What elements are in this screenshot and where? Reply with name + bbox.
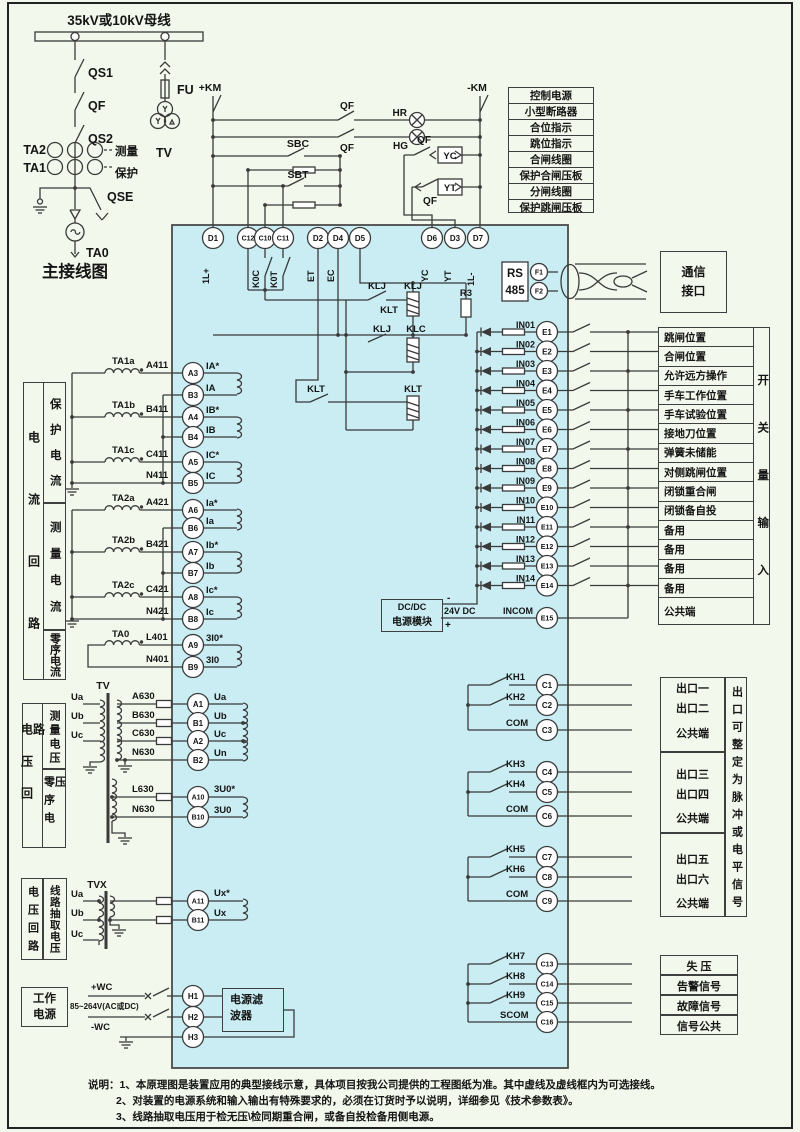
svg-text:A8: A8 [188,593,199,602]
terminal-F1: F1 [531,264,548,281]
note-line-3: 3、线路抽取电压用于检无压\检同期重合闸，或备自投检备用侧电源。 [116,1109,440,1124]
terminal-E10: E10 [537,497,558,518]
wire-label: N421 [146,606,169,617]
svg-text:F1: F1 [535,270,543,277]
wire-label: L401 [146,632,168,643]
current-loop-sidebar: 电流回路 [23,382,44,680]
terminal-A5: A5 [183,452,204,473]
legend-row: 合位指示 [509,120,593,136]
do-label: 公共端 [661,895,724,911]
wire-tag-YT: YT [443,270,453,282]
svg-text:E15: E15 [541,616,554,623]
terminal-H3: H3 [183,1027,204,1048]
signal-label-text: 信号公共 [661,1018,737,1034]
working-power-line1: 工作 [33,991,56,1007]
svg-text:C7: C7 [542,853,553,862]
svg-text:A9: A9 [188,641,199,650]
terminal-A9: A9 [183,635,204,656]
signal-box-1: 失 压 [660,955,738,975]
com-label: COM [506,718,528,729]
di-table-row: 备用 [659,579,753,598]
wire-tag-ET: ET [306,270,316,282]
kh-contact-label: KH9 [506,990,525,1001]
signal-box-2: 告警信号 [660,975,738,995]
measure-voltage-label: 测量电压 [48,710,59,766]
terminal-A2: A2 [188,731,209,752]
do-label: 公共端 [661,810,724,826]
measure-current-sidebar: 测量电流 [43,503,66,630]
kh-contact-label: KH2 [506,692,525,703]
di-input-label: IN07 [516,437,535,447]
di-input-label: IN13 [516,554,535,564]
wire-tag-1L+: 1L+ [201,268,211,284]
svg-text:E11: E11 [541,525,553,532]
di-input-label: IN04 [516,379,535,389]
terminal-E12: E12 [537,536,558,557]
terminal-E5: E5 [537,400,558,421]
signal-label: IC* [206,450,220,461]
signal-label: IA* [206,361,220,372]
do-group3-box: 出口五 出口六 公共端 [660,833,725,917]
svg-text:B10: B10 [192,815,205,822]
com-label: COM [506,889,528,900]
yc-coil-label: YC [443,151,456,162]
signal-label: 3I0* [206,633,223,644]
k0c-contact-label: K0C [251,269,261,288]
wire-label: B421 [146,539,169,550]
svg-text:H2: H2 [188,1013,199,1022]
rs-label: RS [507,268,523,280]
terminal-B2: B2 [188,750,209,771]
di-input-label: IN14 [516,574,535,584]
line-voltage-sidebar: 线路抽取电压 [43,878,67,960]
signal-label: Ia* [206,498,218,509]
ct-label: TA2b [112,535,135,546]
do-sidebar: 出口可整定为脉冲或电平信号 [725,677,747,917]
tvx-symbol-label: TVX [87,880,107,891]
terminal-E4: E4 [537,380,558,401]
di-input-label: IN06 [516,418,535,428]
filter-line2: 波器 [230,1009,283,1025]
working-power-line2: 电源 [33,1007,56,1023]
ct-label: TA0 [112,629,129,640]
svg-text:A4: A4 [188,413,199,422]
svg-text:C16: C16 [541,1020,554,1027]
wire-label: B411 [146,404,169,415]
legend-row: 跳位指示 [509,136,593,152]
phase-ua-label: Ua [71,692,84,703]
tvx-voltage-loop-label: 电压回路 [27,886,38,958]
terminal-B11: B11 [188,910,209,931]
kh-contact-label: KH1 [506,672,526,683]
svg-text:A11: A11 [192,899,205,906]
phase-ub-label: Ub [71,711,84,722]
incom-label: INCOM [503,606,533,616]
di-input-label: IN12 [516,535,535,545]
svg-text:B7: B7 [188,569,199,578]
legend-row: 小型断路器 [509,104,593,120]
svg-text:A3: A3 [188,369,199,378]
di-table-row: 合闸位置 [659,347,753,366]
terminal-E2: E2 [537,341,558,362]
di-input-label: IN10 [516,496,535,506]
terminal-C7: C7 [537,847,558,868]
svg-text:C9: C9 [542,897,553,906]
note-line-2: 2、对装置的电源系统和输入输出有特殊要求的，必须在订货时予以说明，详细参见《技术… [116,1093,579,1108]
terminal-C8: C8 [537,867,558,888]
klt-coil-label: KLT [404,384,422,395]
svg-text:A5: A5 [188,458,199,467]
svg-text:D7: D7 [473,234,484,243]
wire-label: N630 [132,804,155,815]
comm-port-line1: 通信 [681,263,705,282]
svg-text:E6: E6 [542,426,552,435]
signal-label: Ib* [206,540,218,551]
signal-label-text: 失 压 [661,958,737,974]
legend-row: 分闸线圈 [509,184,593,200]
terminal-C15: C15 [537,993,558,1014]
signal-label: Ic [206,607,214,618]
svg-text:C6: C6 [542,812,553,821]
qse-label: QSE [107,190,133,204]
voltage-range-label: 85~264V(AC或DC) [70,1001,139,1011]
signal-label: IA [206,383,216,394]
neg-wc-label: -WC [91,1022,110,1033]
k0t-contact-label: K0T [269,270,279,288]
terminal-H2: H2 [183,1007,204,1028]
wire-label: C421 [146,584,169,595]
protection-label: 保护 [114,166,138,180]
signal-label: Ub [214,711,227,722]
qf-yc-label: QF [417,135,431,146]
signal-label: Uc [214,729,226,740]
terminal-E8: E8 [537,458,558,479]
terminal-D6: D6 [422,228,443,249]
di-input-label: IN01 [516,320,535,330]
terminal-E7: E7 [537,439,558,460]
svg-text:E10: E10 [541,505,554,512]
wire-tag-EC: EC [326,269,336,282]
di-table-row: 闭锁备自投 [659,502,753,521]
di-input-label: IN09 [516,476,535,486]
terminal-A3: A3 [183,363,204,384]
signal-label: Ua [214,692,227,703]
kh-contact-label: KH7 [506,951,525,962]
klt-contact-label: KLT [307,384,325,395]
signal-label: Ux* [214,888,230,899]
terminal-D1: D1 [203,228,224,249]
svg-text:B9: B9 [188,663,199,672]
do-sidebar-label: 出口可整定为脉冲或电平信号 [731,686,742,914]
terminal-E15: E15 [537,608,558,629]
phase-uc-label: Uc [71,730,83,741]
kh-contact-label: KH4 [506,779,526,790]
terminal-D3: D3 [445,228,466,249]
svg-text:D4: D4 [333,234,344,243]
di-sidebar: 开关量输入 [753,327,770,625]
di-input-label: IN11 [516,515,535,525]
power-filter-box: 电源滤 波器 [222,988,284,1032]
svg-text:A1: A1 [193,700,204,709]
terminal-C5: C5 [537,782,558,803]
di-input-label: IN08 [516,457,535,467]
terminal-C2: C2 [537,695,558,716]
hr-lamp-label: HR [393,108,408,119]
terminal-H1: H1 [183,986,204,1007]
comm-port-box: 通信 接口 [660,251,727,313]
di-sidebar-label: 开关量输入 [756,374,768,612]
working-power-box: 工作 电源 [21,987,68,1027]
diagram-title: 主接线图 [42,261,108,281]
legend-row: 合闸线圈 [509,152,593,168]
terminal-D5: D5 [350,228,371,249]
scom-label: SCOM [500,1010,529,1021]
r3-resistor-label: R3 [460,288,472,299]
yt-coil-label: YT [444,183,456,194]
qf-contact-label: QF [340,101,354,112]
wire-tag-1L-: 1L- [466,272,476,286]
terminal-B7: B7 [183,563,204,584]
di-table-row: 手车工作位置 [659,386,753,405]
terminal-D4: D4 [328,228,349,249]
terminal-D7: D7 [468,228,489,249]
tv-symbol-label: TV [96,680,109,692]
svg-text:E2: E2 [542,348,552,357]
svg-text:A2: A2 [193,737,204,746]
ta2-label: TA2 [23,143,46,157]
svg-text:C10: C10 [259,236,272,243]
line-voltage-label: 线路抽取电压 [49,885,60,954]
svg-text:D2: D2 [313,234,324,243]
terminal-A11: A11 [188,891,209,912]
dcdc-module-box: DC/DC 电源模块 [381,599,443,632]
terminal-B6: B6 [183,518,204,539]
svg-text:D6: D6 [427,234,438,243]
svg-text:C15: C15 [541,1001,554,1008]
kh-contact-label: KH5 [506,844,526,855]
terminal-B3: B3 [183,385,204,406]
wire-label: A411 [146,360,169,371]
terminal-B5: B5 [183,473,204,494]
svg-text:C13: C13 [541,962,554,969]
fu-label: FU [177,83,194,97]
klj-contact-upper-label: KLJ [368,281,386,292]
terminal-B10: B10 [188,807,209,828]
terminal-C9: C9 [537,891,558,912]
svg-text:E7: E7 [542,445,552,454]
signal-label: 3U0 [214,805,231,816]
svg-text:E9: E9 [542,484,552,493]
terminal-C3: C3 [537,720,558,741]
qf-contact2-label: QF [340,143,354,154]
sbc-button-label: SBC [287,138,310,150]
terminal-E3: E3 [537,361,558,382]
dc24-label: 24V DC [444,606,476,616]
svg-text:C2: C2 [542,701,553,710]
terminal-B4: B4 [183,427,204,448]
zero-seq-current-label: 零序电流 [49,633,60,677]
svg-text:H1: H1 [188,992,199,1001]
dc-minus-label: - [447,593,450,604]
di-table-row: 备用 [659,521,753,540]
di-table-row: 允许远方操作 [659,367,753,386]
do-label: 出口五 [661,851,724,867]
svg-text:B2: B2 [193,756,204,765]
qs1-label: QS1 [88,66,113,80]
terminal-B8: B8 [183,609,204,630]
terminal-A4: A4 [183,407,204,428]
terminal-A1: A1 [188,694,209,715]
voltage-loop-sidebar: 电压回路 [22,703,43,848]
terminal-D2: D2 [308,228,329,249]
qf-label: QF [88,99,106,113]
svg-text:E14: E14 [541,583,554,590]
svg-text:C3: C3 [542,726,553,735]
top-legend-table: 控制电源 小型断路器 合位指示 跳位指示 合闸线圈 保护合闸压板 分闸线圈 保护… [508,87,594,213]
do-group2-box: 出口三 出口四 公共端 [660,752,725,833]
svg-text:F2: F2 [535,289,543,296]
klc-coil-label: KLC [406,324,426,335]
di-table-row: 跳闸位置 [659,328,753,347]
qs2-label: QS2 [88,132,113,146]
di-table-row: 弹簧未储能 [659,444,753,463]
phase-uc-label: Uc [71,929,83,940]
svg-text:E8: E8 [542,465,552,474]
svg-text:C5: C5 [542,788,553,797]
do-label: 出口四 [661,786,724,802]
do-label: 出口三 [661,766,724,782]
di-input-label: IN03 [516,359,535,369]
minus-km-label: -KM [467,82,487,94]
signal-label: Un [214,748,227,759]
terminal-A10: A10 [188,787,209,808]
signal-box-3: 故障信号 [660,995,738,1015]
terminal-E1: E1 [537,322,558,343]
do-group1-box: 出口一 出口二 公共端 [660,677,725,752]
ta0-label: TA0 [86,246,109,260]
wire-label: B630 [132,710,155,721]
signal-label-text: 故障信号 [661,998,737,1014]
signal-label: Ux [214,908,227,919]
terminal-A8: A8 [183,587,204,608]
di-table-row: 备用 [659,560,753,579]
svg-text:A10: A10 [192,795,205,802]
signal-label: 3U0* [214,784,235,795]
svg-text:D1: D1 [208,234,219,243]
protection-current-sidebar: 保护电流 [43,382,66,503]
rs485-label: 485 [505,285,525,297]
svg-text:B4: B4 [188,433,199,442]
zero-seq-voltage-label: 零序电压 [43,776,65,847]
svg-text:C1: C1 [542,681,553,690]
current-loop-label: 电流回路 [28,431,40,679]
wire-label: C630 [132,728,155,739]
do-label: 公共端 [661,725,724,741]
svg-text:E12: E12 [541,544,554,551]
ct-label: TA2c [112,580,135,591]
com-label: COM [506,804,528,815]
dcdc-line1: DC/DC [398,601,427,615]
dcdc-line2: 电源模块 [392,615,432,630]
schematic-page: 35kV或10kV母线 QS1 QF QS2 TA2 TA1 测量 保护 FU … [0,0,800,1132]
measure-current-label: 测量电流 [48,521,60,627]
phase-ua-label: Ua [71,889,84,900]
signal-label: Ib [206,561,215,572]
di-input-label: IN05 [516,398,535,408]
wire-label: A421 [146,497,169,508]
wire-label: N630 [132,747,155,758]
terminal-F2: F2 [531,283,548,300]
terminal-E6: E6 [537,419,558,440]
signal-label: IB* [206,405,220,416]
terminal-E14: E14 [537,575,558,596]
measure-voltage-sidebar: 测量电压 [42,703,66,769]
signal-label: Ia [206,516,215,527]
bus-label: 35kV或10kV母线 [67,12,171,28]
signal-label: IB [206,425,216,436]
svg-text:B11: B11 [192,918,205,925]
di-table-row: 对侧跳闸位置 [659,463,753,482]
svg-text:E13: E13 [541,564,554,571]
svg-text:B3: B3 [188,391,199,400]
terminal-C14: C14 [537,974,558,995]
di-input-label: IN02 [516,340,535,350]
ta1-label: TA1 [23,161,46,175]
comm-port-line2: 接口 [681,282,705,301]
filter-line1: 电源滤 [230,993,283,1009]
svg-text:H3: H3 [188,1033,199,1042]
terminal-E9: E9 [537,478,558,499]
svg-text:C4: C4 [542,768,553,777]
terminal-E11: E11 [537,517,558,538]
di-table-row: 备用 [659,540,753,559]
hg-lamp-label: HG [393,141,408,152]
svg-text:B6: B6 [188,524,199,533]
svg-text:C8: C8 [542,873,553,882]
plus-km-label: +KM [199,82,222,94]
ct-label: TA1c [112,445,135,456]
measure-label: 测量 [115,144,138,158]
svg-text:D3: D3 [450,234,461,243]
terminal-C4: C4 [537,762,558,783]
protection-current-label: 保护电流 [48,398,60,500]
terminal-E13: E13 [537,556,558,577]
note-line-1: 说明：1、本原理图是装置应用的典型接线示意，具体项目按我公司提供的工程图纸为准。… [88,1077,661,1092]
do-label: 出口二 [661,700,724,716]
svg-text:A6: A6 [188,506,199,515]
svg-text:E5: E5 [542,406,552,415]
signal-label: 3I0 [206,655,219,666]
di-table-row-common: 公共端 [659,598,753,624]
legend-row: 保护跳闸压板 [509,200,593,215]
ct-label: TA1b [112,400,135,411]
dc-plus-label: + [445,620,451,631]
wire-label: A630 [132,691,155,702]
svg-text:B5: B5 [188,479,199,488]
di-table-row: 接地刀位置 [659,424,753,443]
di-table-row: 手车试验位置 [659,405,753,424]
qf-yt-label: QF [423,196,437,207]
kh-contact-label: KH3 [506,759,525,770]
signal-label: Ic* [206,585,218,596]
svg-text:B8: B8 [188,615,199,624]
terminal-C11: C11 [273,228,294,249]
svg-text:D5: D5 [355,234,366,243]
ct-label: TA1a [112,356,135,367]
svg-text:A7: A7 [188,548,199,557]
signal-label-text: 告警信号 [661,978,737,994]
tvx-voltage-loop-sidebar: 电压回路 [21,878,43,960]
